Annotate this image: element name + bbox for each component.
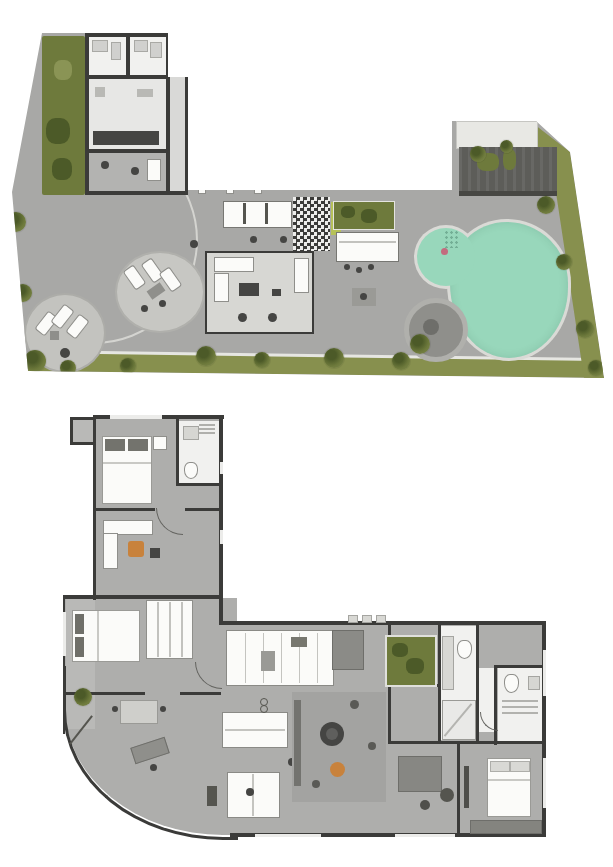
floor-plan-sheet — [0, 0, 613, 867]
console — [207, 786, 217, 806]
toilet — [457, 640, 472, 659]
shower-line — [199, 428, 215, 430]
media-cabinet — [227, 772, 280, 818]
planter-pot — [362, 615, 372, 623]
planter-pot — [376, 615, 386, 623]
bed — [487, 758, 531, 817]
blanket-line — [97, 611, 99, 661]
interior-wall — [95, 508, 155, 511]
sink — [528, 676, 540, 690]
interior-wall — [390, 741, 543, 744]
chair — [160, 706, 166, 712]
interior-wall — [388, 686, 391, 744]
accent-chair — [330, 762, 345, 777]
pillow — [75, 614, 84, 634]
counter-divider — [317, 633, 318, 683]
outer-wall — [219, 415, 223, 625]
laundry-unit — [440, 788, 454, 802]
sink — [183, 426, 199, 440]
stub-wall — [70, 417, 96, 420]
chair — [112, 706, 118, 712]
shelf-line — [502, 700, 538, 702]
shower-line — [199, 432, 215, 434]
shower-line — [199, 424, 215, 426]
interior-wall — [63, 595, 221, 599]
shower-drain-line — [444, 703, 473, 736]
pillow — [128, 439, 148, 451]
kitchen-counter — [226, 630, 334, 686]
kitchen-island — [222, 712, 288, 748]
balcony-stub — [72, 419, 95, 443]
sofa — [103, 533, 118, 569]
wardrobe-line — [181, 602, 183, 657]
dressing-cabinet — [398, 756, 442, 792]
wardrobe-line — [169, 602, 171, 657]
window — [543, 758, 546, 808]
dining-table — [320, 722, 344, 746]
window — [63, 612, 66, 656]
blanket-line — [488, 779, 530, 781]
bathroom — [179, 421, 219, 483]
cooktop — [261, 651, 275, 671]
stub-wall — [70, 417, 73, 445]
accent-ottoman — [128, 541, 144, 557]
fridge-cabinet — [332, 630, 364, 670]
blanket-line — [103, 462, 151, 464]
bed — [72, 610, 140, 662]
wardrobe-line — [157, 602, 159, 657]
pouf — [312, 780, 320, 788]
window — [543, 650, 546, 696]
pillow — [510, 761, 530, 772]
pouf — [150, 764, 157, 771]
toilet — [184, 462, 198, 479]
side-table — [368, 742, 376, 750]
window — [255, 834, 321, 837]
tv-console — [464, 766, 469, 808]
pillow — [75, 637, 84, 657]
sink — [291, 637, 307, 647]
window — [395, 834, 455, 837]
pillow — [490, 761, 510, 772]
armchair — [350, 700, 359, 709]
planter-pot — [348, 615, 358, 623]
side-table — [150, 548, 160, 558]
shrub-patch — [392, 643, 408, 657]
bathroom — [441, 626, 476, 740]
wardrobe-low — [470, 820, 542, 834]
window — [220, 462, 223, 474]
interior-wall — [176, 483, 221, 486]
interior-wall — [494, 665, 497, 745]
interior-wall — [180, 692, 221, 695]
stub-wall — [70, 442, 96, 445]
nightstand — [153, 436, 167, 450]
window — [220, 530, 223, 544]
shower — [442, 700, 476, 740]
apartment-plan — [0, 0, 613, 867]
bed — [102, 436, 152, 504]
island-line — [225, 729, 285, 731]
shrub-patch — [406, 658, 424, 674]
counter-divider — [281, 633, 282, 683]
console-table — [120, 700, 158, 724]
balcony-planter — [74, 688, 92, 706]
wc-room — [498, 668, 542, 741]
chair — [246, 788, 254, 796]
vanity — [442, 636, 454, 690]
wardrobe — [146, 600, 193, 659]
table-center — [326, 728, 338, 740]
sofa-long — [294, 700, 301, 786]
toilet — [504, 674, 519, 693]
shelf-line — [502, 712, 538, 714]
pillow — [105, 439, 125, 451]
shelf-line — [502, 706, 538, 708]
counter-divider — [245, 633, 246, 683]
stool — [420, 800, 430, 810]
window — [110, 415, 162, 419]
interior-planter — [385, 635, 437, 687]
interior-wall — [185, 508, 221, 511]
hinge-mark — [260, 705, 268, 713]
interior-wall — [457, 744, 460, 835]
